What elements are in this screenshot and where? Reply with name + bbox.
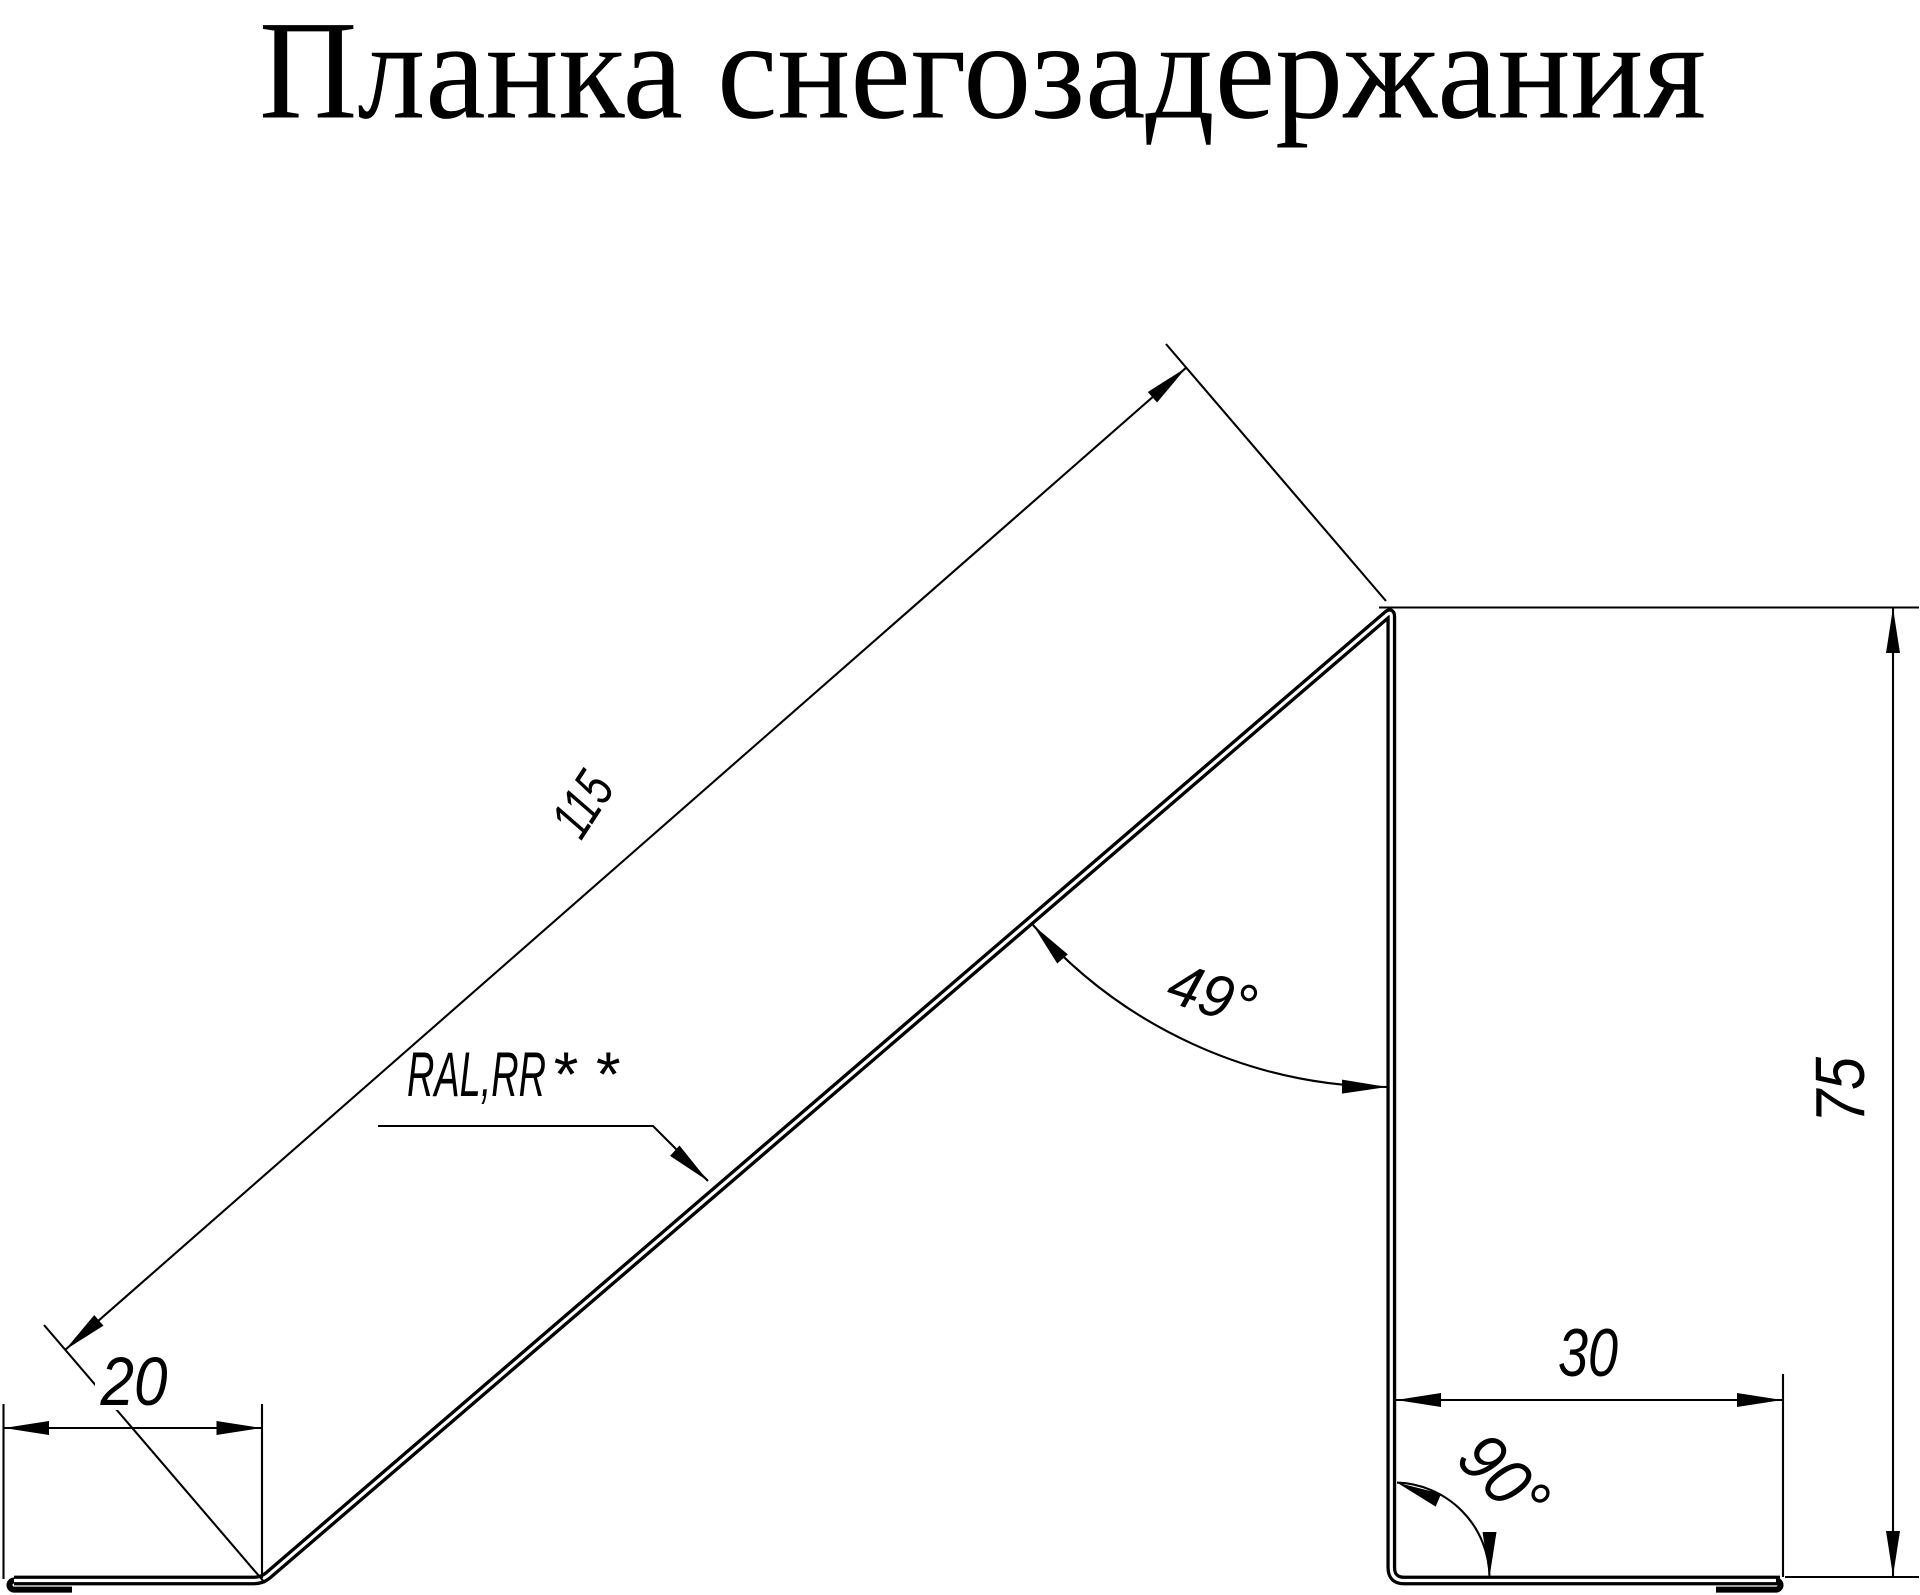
svg-text:75: 75 (1801, 1056, 1879, 1123)
svg-text:Планка снегозадержания: Планка снегозадержания (259, 0, 1706, 149)
svg-text:* *: * * (551, 1040, 620, 1110)
svg-text:30: 30 (1558, 1315, 1618, 1391)
svg-text:20: 20 (100, 1343, 168, 1420)
svg-text:RAL,RR: RAL,RR (407, 1040, 546, 1110)
